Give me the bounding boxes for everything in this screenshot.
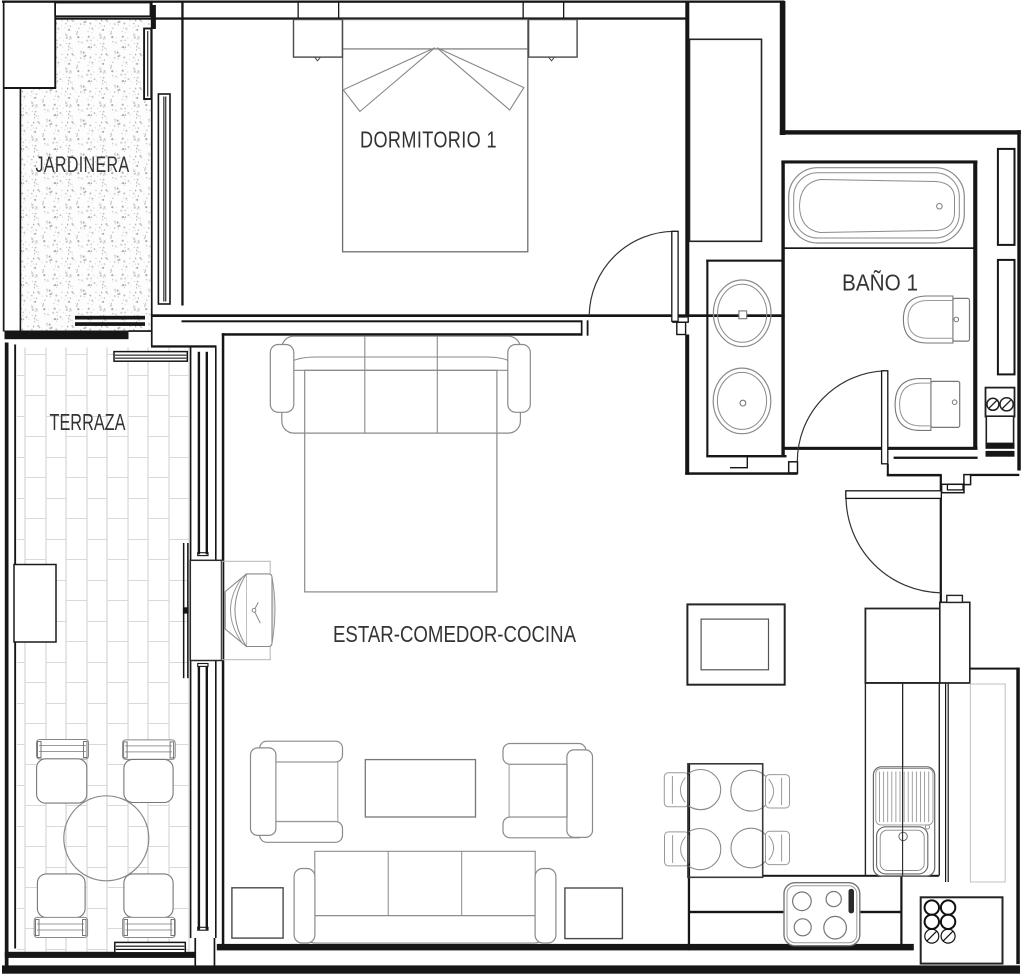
svg-text:ESTAR-COMEDOR-COCINA: ESTAR-COMEDOR-COCINA xyxy=(333,621,576,647)
svg-text:BAÑO 1: BAÑO 1 xyxy=(842,270,918,296)
svg-text:DORMITORIO 1: DORMITORIO 1 xyxy=(360,127,497,153)
svg-text:JARDINERA: JARDINERA xyxy=(36,152,130,177)
svg-text:TERRAZA: TERRAZA xyxy=(50,409,126,435)
